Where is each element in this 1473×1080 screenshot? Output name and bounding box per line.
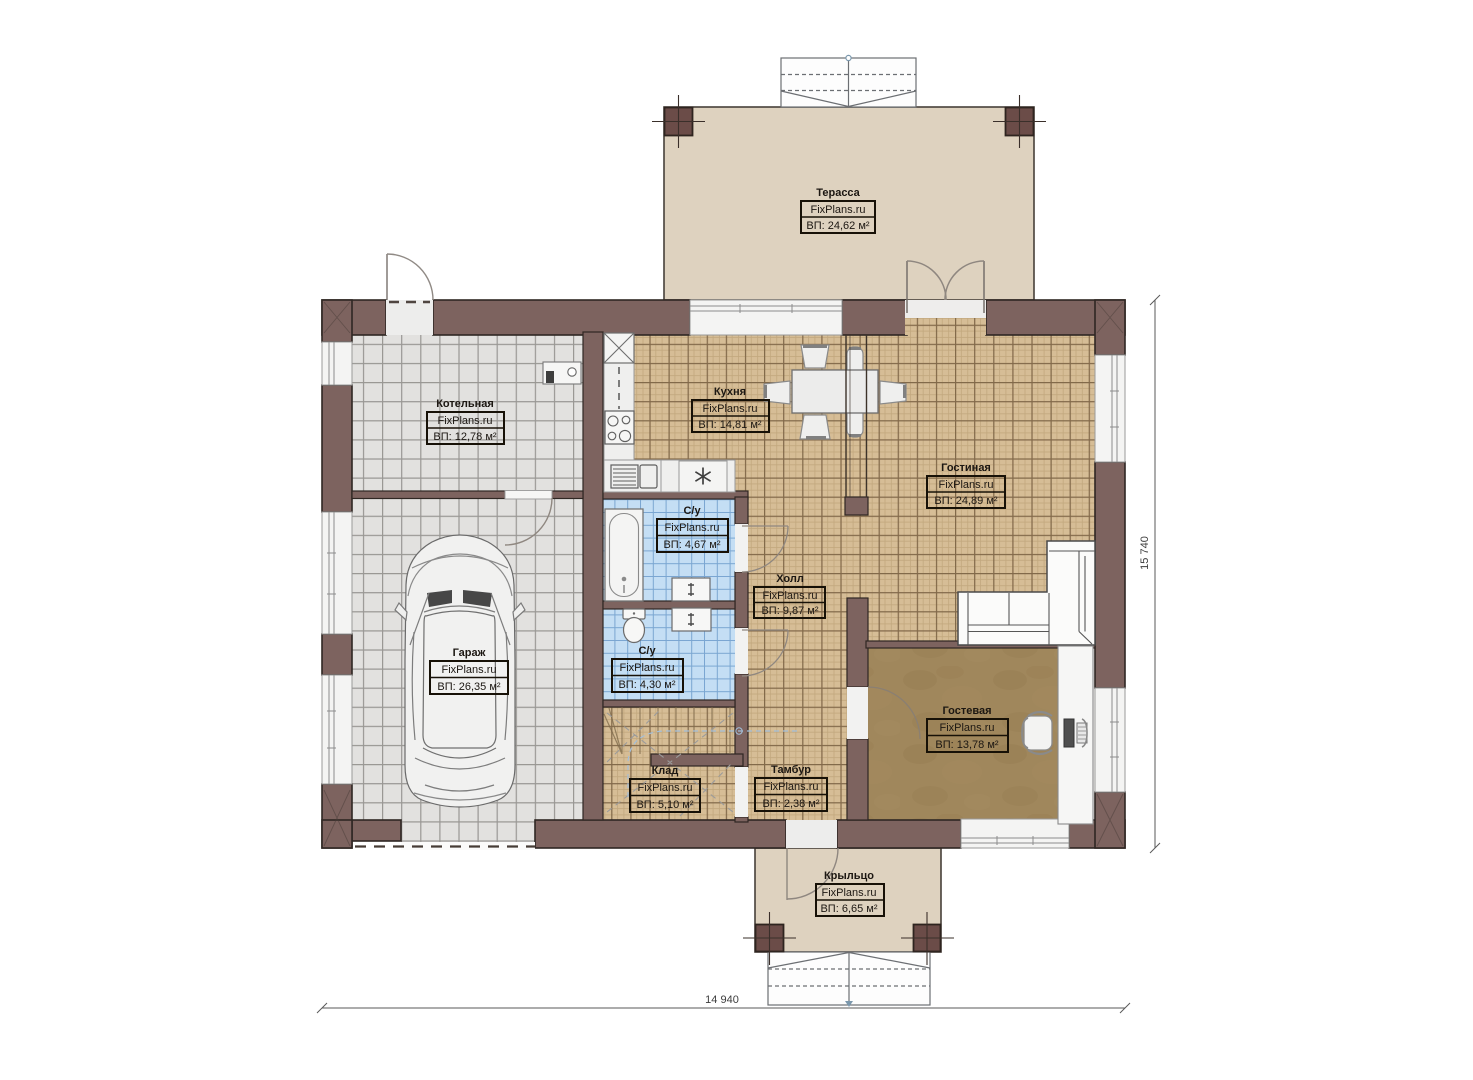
svg-text:15 740: 15 740: [1139, 536, 1151, 570]
svg-text:С/у: С/у: [683, 505, 701, 517]
svg-text:FixPlans.ru: FixPlans.ru: [810, 204, 865, 216]
svg-text:Холл: Холл: [776, 573, 804, 585]
svg-text:ВП: 24,62 м²: ВП: 24,62 м²: [806, 220, 870, 232]
svg-text:Гостиная: Гостиная: [941, 462, 991, 474]
svg-text:FixPlans.ru: FixPlans.ru: [619, 662, 674, 674]
svg-text:С/у: С/у: [638, 645, 656, 657]
svg-text:Терасса: Терасса: [816, 187, 860, 199]
svg-text:FixPlans.ru: FixPlans.ru: [664, 522, 719, 534]
svg-text:FixPlans.ru: FixPlans.ru: [938, 479, 993, 491]
svg-text:FixPlans.ru: FixPlans.ru: [637, 782, 692, 794]
svg-text:Кухня: Кухня: [714, 386, 746, 398]
svg-text:FixPlans.ru: FixPlans.ru: [939, 722, 994, 734]
svg-text:ВП: 12,78 м²: ВП: 12,78 м²: [433, 431, 497, 443]
svg-text:FixPlans.ru: FixPlans.ru: [702, 403, 757, 415]
svg-text:FixPlans.ru: FixPlans.ru: [441, 664, 496, 676]
svg-text:14 940: 14 940: [705, 994, 739, 1006]
svg-text:Гараж: Гараж: [453, 647, 486, 659]
svg-text:Котельная: Котельная: [436, 398, 494, 410]
svg-text:ВП: 13,78 м²: ВП: 13,78 м²: [935, 739, 999, 751]
svg-text:Крыльцо: Крыльцо: [824, 870, 874, 882]
svg-text:FixPlans.ru: FixPlans.ru: [821, 887, 876, 899]
svg-text:ВП: 6,65 м²: ВП: 6,65 м²: [820, 903, 877, 915]
svg-text:FixPlans.ru: FixPlans.ru: [762, 590, 817, 602]
svg-text:Гостевая: Гостевая: [942, 705, 991, 717]
svg-text:ВП: 14,81 м²: ВП: 14,81 м²: [698, 419, 762, 431]
svg-text:ВП: 5,10 м²: ВП: 5,10 м²: [636, 799, 693, 811]
svg-text:ВП: 9,87 м²: ВП: 9,87 м²: [761, 605, 818, 617]
svg-text:ВП: 2,38 м²: ВП: 2,38 м²: [762, 798, 819, 810]
svg-text:FixPlans.ru: FixPlans.ru: [437, 415, 492, 427]
svg-text:FixPlans.ru: FixPlans.ru: [763, 781, 818, 793]
svg-text:ВП: 26,35 м²: ВП: 26,35 м²: [437, 681, 501, 693]
svg-text:ВП: 4,30 м²: ВП: 4,30 м²: [618, 679, 675, 691]
svg-text:ВП: 24,89 м²: ВП: 24,89 м²: [934, 495, 998, 507]
svg-text:Тамбур: Тамбур: [771, 764, 811, 776]
svg-text:Клад: Клад: [652, 765, 679, 777]
svg-text:ВП: 4,67 м²: ВП: 4,67 м²: [663, 539, 720, 551]
